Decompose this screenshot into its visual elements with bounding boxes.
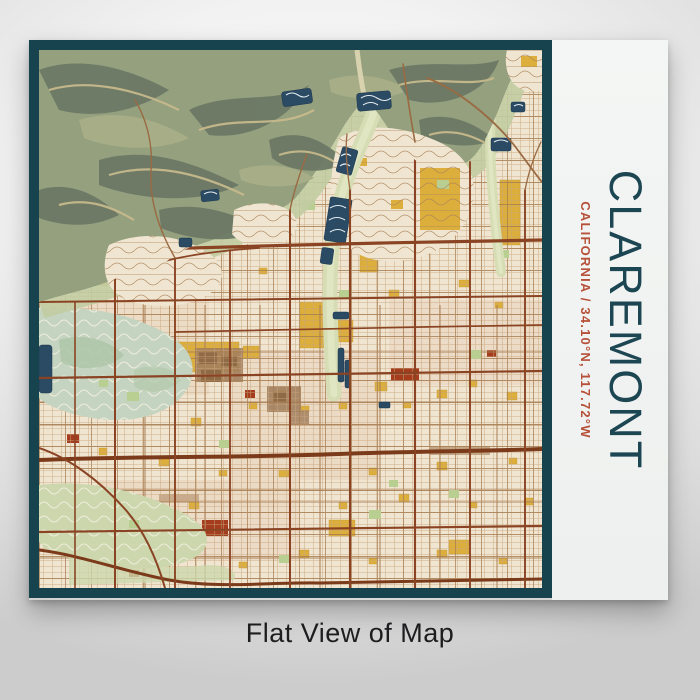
map-frame <box>29 40 552 598</box>
map-title: CLAREMONT <box>599 170 651 471</box>
map-print: CALIFORNIA / 34.10°N, 117.72°W CLAREMONT <box>29 40 668 600</box>
title-panel: CALIFORNIA / 34.10°N, 117.72°W CLAREMONT <box>552 40 668 600</box>
map-canvas <box>39 50 542 588</box>
map-subtitle: CALIFORNIA / 34.10°N, 117.72°W <box>578 201 593 438</box>
caption: Flat View of Map <box>0 618 700 649</box>
